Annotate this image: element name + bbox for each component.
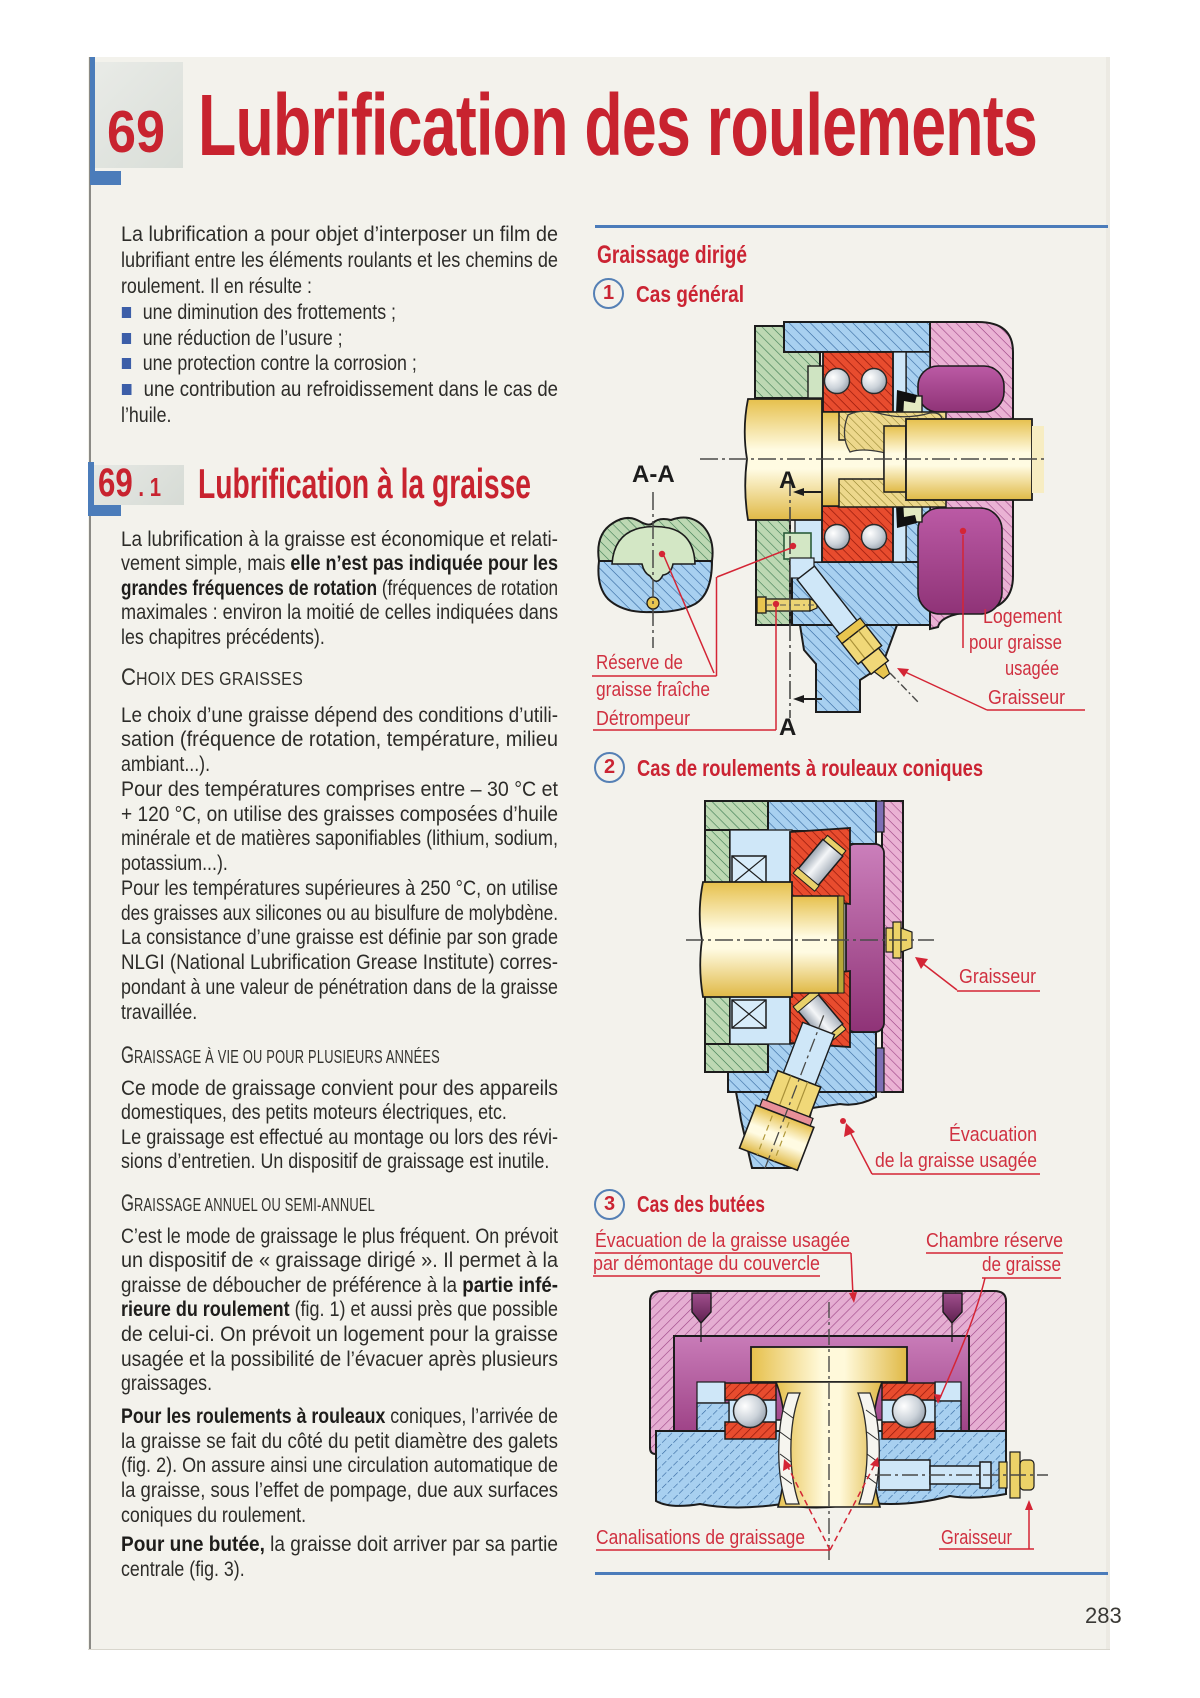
svg-text:A-A: A-A xyxy=(632,461,675,488)
svg-text:A: A xyxy=(779,714,796,741)
svg-text:A: A xyxy=(779,467,796,494)
